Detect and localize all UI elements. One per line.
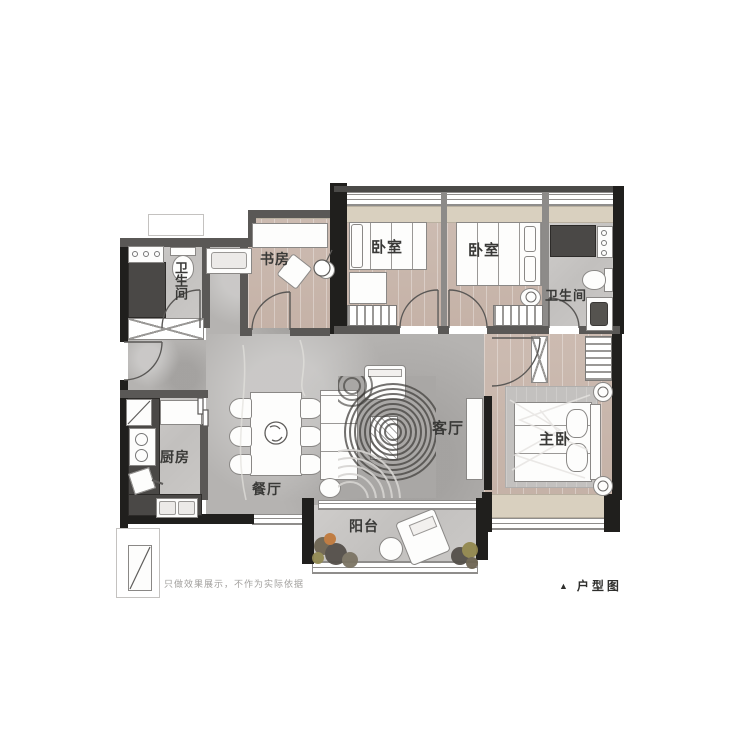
knob-icon bbox=[601, 240, 607, 246]
wall-living-master bbox=[484, 396, 492, 490]
master-hall-cabinet bbox=[531, 336, 548, 383]
bed-a-pillow bbox=[351, 224, 363, 268]
wall-bedroom-divider bbox=[441, 192, 447, 328]
room-label-study: 书房 bbox=[260, 249, 290, 269]
sofa bbox=[320, 390, 358, 480]
bay-master-band bbox=[492, 494, 604, 518]
legend-label: 户型图 bbox=[577, 577, 622, 594]
dining-table bbox=[250, 392, 302, 476]
entry-shoe-cabinet bbox=[128, 318, 204, 340]
bedroom-a-desk bbox=[349, 272, 387, 304]
room-label-bathroom-left: 卫生间 bbox=[171, 261, 190, 300]
bed-b-pillow-1 bbox=[524, 226, 536, 252]
bay-top-band bbox=[334, 206, 614, 223]
bathroom-right-sink bbox=[590, 302, 608, 326]
master-nightstand-top bbox=[593, 382, 613, 402]
room-label-dining: 餐厅 bbox=[252, 479, 282, 499]
bedroom-b-wardrobe bbox=[493, 305, 543, 326]
wall-balcony-right bbox=[476, 498, 488, 560]
wall-column-study-bedroom bbox=[330, 183, 347, 334]
kitchen-sink-basin-right bbox=[178, 501, 195, 515]
wall-master-right bbox=[612, 334, 622, 500]
coffee-table bbox=[370, 416, 398, 460]
dining-chair bbox=[229, 426, 252, 447]
wall-study-top bbox=[248, 210, 332, 218]
knob-icon bbox=[143, 251, 149, 257]
tv-console bbox=[466, 398, 483, 480]
wall-study-bottom-1 bbox=[240, 328, 252, 336]
wall-bedrooms-bottom-1 bbox=[334, 326, 400, 334]
wall-right-top bbox=[613, 186, 624, 334]
washbasin-entry-sink bbox=[211, 252, 247, 269]
plan-legend: ▲ 户型图 bbox=[559, 577, 622, 594]
kitchen-sink-basin-left bbox=[159, 501, 176, 515]
wall-master-window-right-post bbox=[604, 494, 620, 532]
armchair-back bbox=[368, 369, 402, 377]
exterior-window-symbol bbox=[128, 545, 152, 591]
wall-kitchen-top bbox=[120, 390, 208, 398]
wall-bedrooms-bottom-3 bbox=[487, 326, 549, 334]
window-top-band bbox=[334, 192, 614, 206]
room-label-bedroom-b: 卧室 bbox=[468, 239, 500, 260]
balcony-table bbox=[379, 537, 403, 561]
master-bed-headboard bbox=[590, 404, 601, 480]
side-table bbox=[319, 478, 341, 498]
wall-bedroom-bath-divider bbox=[542, 192, 549, 328]
burner-icon bbox=[135, 433, 148, 446]
wall-bedrooms-bottom-2 bbox=[438, 326, 449, 334]
study-desk bbox=[252, 223, 328, 248]
master-closet bbox=[585, 336, 612, 381]
knob-icon bbox=[601, 250, 607, 256]
master-nightstand-bottom bbox=[593, 476, 613, 496]
bedroom-a-wardrobe bbox=[347, 305, 397, 326]
window-balcony-band bbox=[312, 561, 478, 574]
wall-study-bottom-2 bbox=[290, 328, 330, 336]
room-label-living: 客厅 bbox=[432, 417, 464, 438]
room-label-master-bedroom: 主卧 bbox=[539, 428, 571, 449]
knob-icon bbox=[132, 251, 138, 257]
window-master-band bbox=[490, 518, 606, 530]
wall-balcony-left bbox=[302, 498, 314, 564]
entry-door-gap bbox=[120, 342, 128, 380]
balcony-slider-band bbox=[318, 500, 478, 510]
knob-icon bbox=[601, 230, 607, 236]
shower-left bbox=[128, 262, 166, 318]
dining-chair bbox=[229, 454, 252, 475]
room-label-bathroom-right: 卫生间 bbox=[545, 285, 587, 304]
kitchen-window-symbol bbox=[126, 399, 152, 426]
disclaimer-text: 只做效果展示，不作为实际依据 bbox=[164, 577, 304, 590]
knob-icon bbox=[154, 251, 160, 257]
room-label-kitchen: 厨房 bbox=[160, 447, 190, 467]
study-stool bbox=[317, 261, 335, 279]
room-label-bedroom-a: 卧室 bbox=[371, 236, 403, 257]
shower-right bbox=[550, 225, 596, 257]
floor-entry-lower bbox=[128, 340, 206, 392]
wall-kitchen-right bbox=[200, 424, 208, 500]
window-kitchen-band bbox=[252, 514, 308, 525]
dining-chair bbox=[229, 398, 252, 419]
wall-top-exterior-line bbox=[334, 186, 614, 192]
shaft-box bbox=[148, 214, 204, 236]
room-label-balcony: 阳台 bbox=[349, 516, 379, 536]
legend-triangle-icon: ▲ bbox=[559, 581, 568, 591]
burner-icon bbox=[135, 449, 148, 462]
floor-plan-canvas: 卫生间 书房 卧室 卧室 卫生间 厨房 餐厅 客厅 主卧 阳台 只做效果展示，不… bbox=[0, 0, 750, 740]
fridge bbox=[160, 400, 202, 425]
bed-b-pillow-2 bbox=[524, 256, 536, 282]
